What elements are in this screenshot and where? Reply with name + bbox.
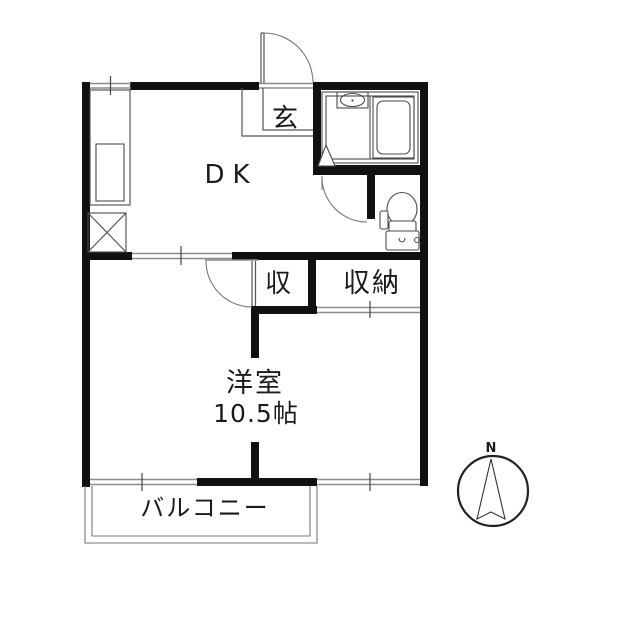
toilet-door-arc [322, 177, 367, 222]
wall-top-main [130, 82, 259, 90]
floorplan-page: N 玄 DK 収 収納 洋室 10.5帖 バルコニー [0, 0, 640, 640]
bathtub-outer [373, 97, 414, 158]
wall-right [420, 82, 428, 486]
opening-dk-bedroom [132, 246, 232, 265]
wall-stub-upper [251, 314, 259, 358]
wall-bottom-corner-right [420, 478, 428, 486]
bedroom-door [205, 260, 258, 307]
floorplan-drawing: N 玄 DK 収 収納 洋室 10.5帖 バルコニー [0, 0, 640, 640]
label-entrance: 玄 [272, 104, 298, 134]
stove-icon [88, 213, 126, 252]
toilet-seat-icon [389, 221, 416, 232]
toilet-fixture [380, 193, 420, 251]
compass-north-label: N [486, 441, 497, 456]
wall-closet-bottom [251, 306, 317, 314]
washbasin-drain-icon [351, 99, 353, 101]
kitchen-sink [96, 144, 124, 201]
window-bottom-left [90, 473, 197, 491]
bathroom [318, 92, 418, 166]
bathtub-inner [377, 101, 410, 154]
window-top-kitchen [90, 76, 131, 95]
label-storage-small: 収 [265, 269, 291, 299]
label-western-room: 洋室 [226, 368, 284, 399]
window-bottom-right [317, 473, 420, 491]
kitchen [88, 90, 130, 252]
wall-middle-right [232, 252, 428, 260]
sliding-door-closet [317, 301, 420, 318]
wall-top-bathroom [313, 82, 428, 90]
label-storage-closet: 収納 [343, 268, 401, 299]
entrance-door-leaf [261, 33, 264, 83]
compass-needle-icon [477, 459, 505, 519]
bedroom-door-leaf [252, 261, 256, 306]
toilet-lever-icon [380, 211, 388, 229]
wall-middle-left [82, 252, 132, 260]
label-balcony: バルコニー [140, 494, 270, 522]
wall-left [82, 82, 90, 487]
bedroom-door-arc [206, 261, 252, 307]
entrance-threshold [259, 84, 313, 89]
wall-bottom-corner-left [82, 478, 90, 486]
compass: N [458, 441, 528, 526]
wall-bottom-middle [197, 478, 317, 486]
wall-toilet-stub [367, 175, 375, 219]
wall-closet-divider [308, 252, 316, 314]
label-western-room-size: 10.5帖 [213, 399, 299, 428]
label-dining-kitchen: DK [204, 160, 257, 190]
entrance-door-arc [264, 33, 313, 82]
